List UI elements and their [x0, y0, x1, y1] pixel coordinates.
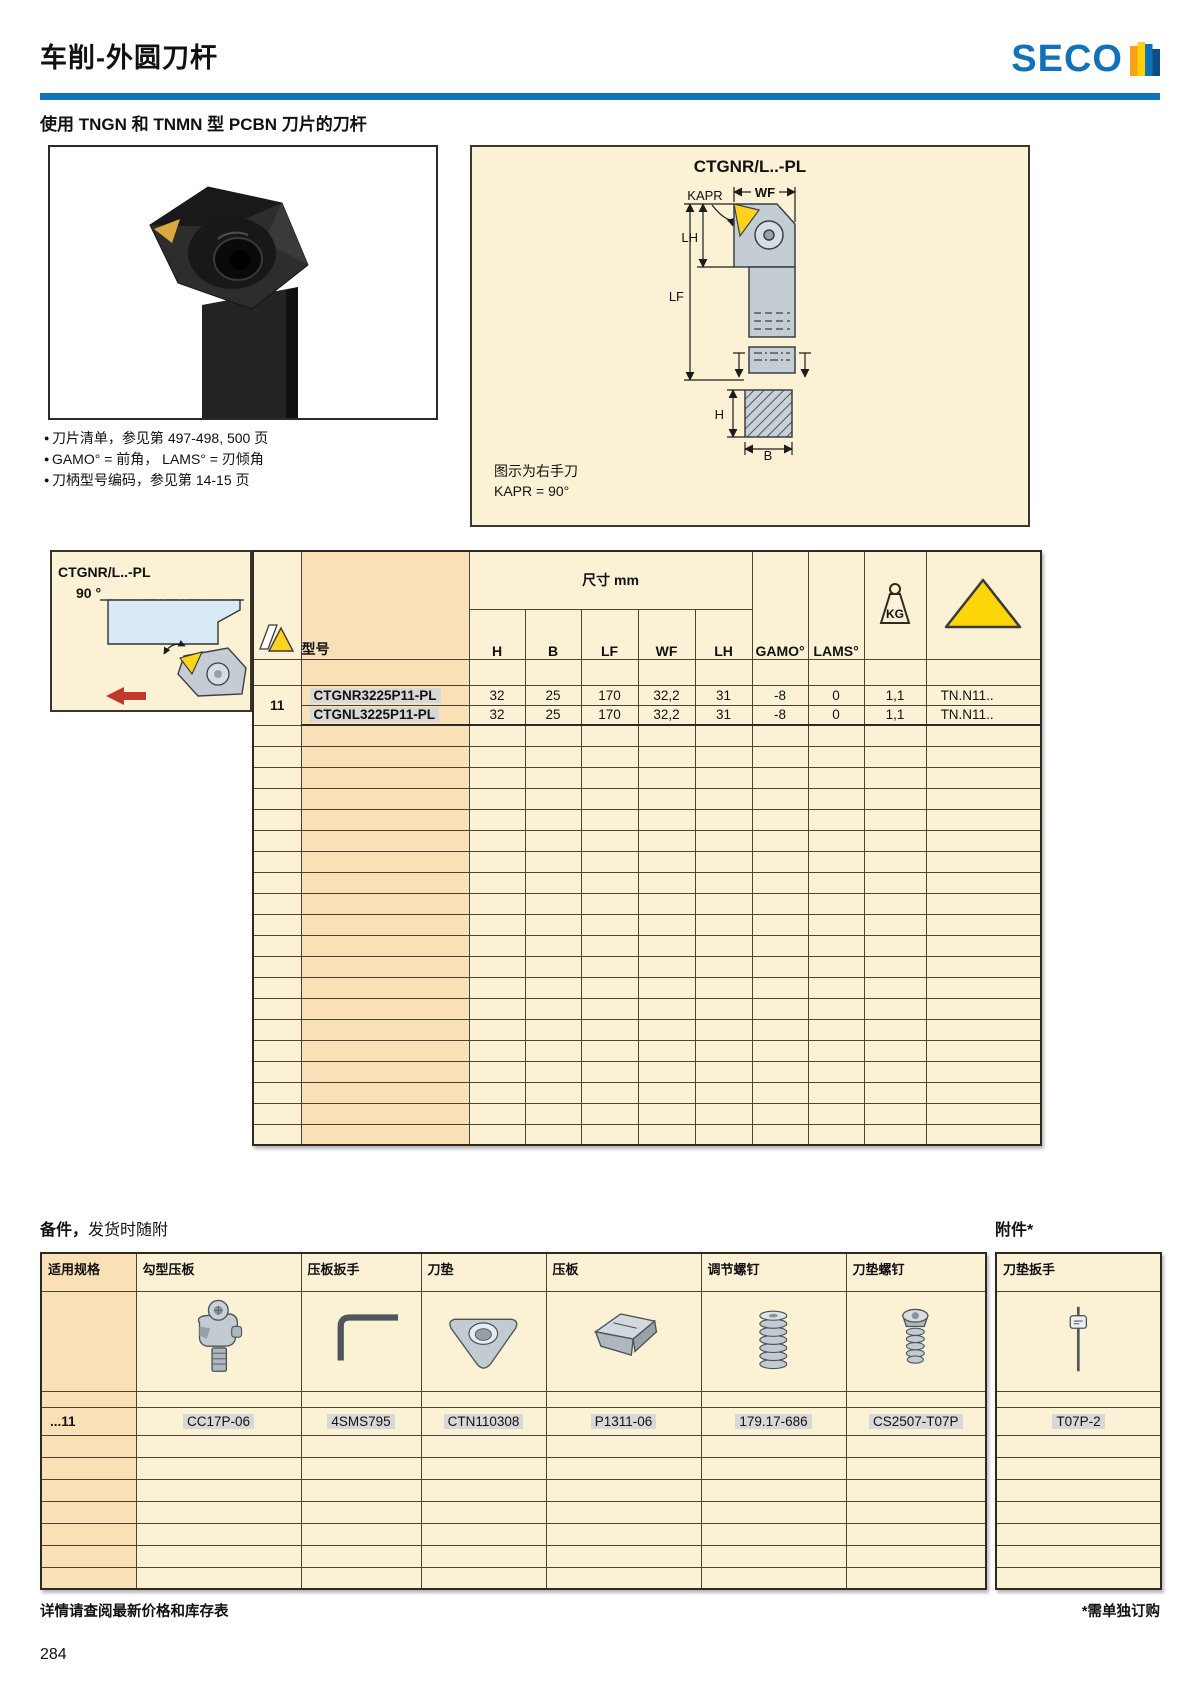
- seco-logo: SECO: [1011, 40, 1160, 78]
- empty-row: [996, 1479, 1161, 1501]
- section-subtitle: 使用 TNGN 和 TNMN 型 PCBN 刀片的刀杆: [40, 110, 367, 135]
- diagram-title: CTGNR/L..-PL: [472, 157, 1028, 177]
- spacer-row: [41, 1391, 986, 1407]
- empty-row: [41, 1501, 986, 1523]
- accessory-image-row: [41, 1291, 986, 1391]
- h-cell: 32: [469, 705, 525, 725]
- empty-row: [253, 851, 1041, 872]
- empty-row: [253, 956, 1041, 977]
- accessory-value-row: T07P-2: [996, 1407, 1161, 1435]
- hook-clamp-icon: [178, 1296, 259, 1382]
- note-item: GAMO° = 前角， LAMS° = 刃倾角: [44, 449, 268, 470]
- wf-label: WF: [755, 185, 775, 200]
- note-item: 刀片清单，参见第 497-498, 500 页: [44, 428, 268, 449]
- b-cell: 25: [525, 685, 581, 705]
- shim-part: CTN110308: [421, 1407, 546, 1435]
- kg-cell: 1,1: [864, 685, 926, 705]
- model-cell: CTGNL3225P11-PL: [301, 705, 469, 725]
- lams-cell: 0: [808, 685, 864, 705]
- empty-row: [253, 1124, 1041, 1145]
- empty-row: [253, 830, 1041, 851]
- wf-column-header: WF: [638, 609, 695, 659]
- gamo-cell: -8: [752, 685, 808, 705]
- empty-row: [253, 1082, 1041, 1103]
- clamp-icon: [583, 1296, 664, 1382]
- empty-row: [41, 1457, 986, 1479]
- table-row: CTGNL3225P11-PL 32 25 170 32,2 31 -8 0 1…: [253, 705, 1041, 725]
- table-row: 11 CTGNR3225P11-PL 32 25 170 32,2 31 -8 …: [253, 685, 1041, 705]
- triangle-insert-icon: [940, 575, 1026, 633]
- adjust-screw-header: 调节螺钉: [701, 1253, 846, 1291]
- kapr-label: KAPR: [687, 188, 722, 203]
- h-label: H: [715, 407, 724, 422]
- empty-row: [41, 1479, 986, 1501]
- spec-cell: ...11: [41, 1407, 136, 1435]
- spec-column-header: 适用规格: [41, 1253, 136, 1291]
- spare-parts-title: 备件，发货时随附: [40, 1216, 168, 1240]
- diagram-note-kapr: KAPR = 90°: [494, 483, 569, 499]
- model-column-header: 型号: [301, 551, 469, 659]
- lh-label: LH: [681, 230, 698, 245]
- dimension-diagram-box: CTGNR/L..-PL: [470, 145, 1030, 527]
- accessory-value-row: ...11 CC17P-06 4SMS795 CTN110308 P1311-0…: [41, 1407, 986, 1435]
- empty-row: [996, 1457, 1161, 1479]
- toolholder-photo: [50, 147, 436, 418]
- catalog-page: 车削-外圆刀杆 SECO 使用 TNGN 和 TNMN 型 PCBN 刀片的刀杆…: [0, 0, 1200, 1697]
- empty-row: [41, 1545, 986, 1567]
- feed-direction-arrow: [106, 687, 146, 705]
- page-number: 284: [40, 1646, 67, 1664]
- dimensions-group-header: 尺寸 mm: [469, 551, 752, 609]
- b-column-header: B: [525, 609, 581, 659]
- empty-row: [253, 788, 1041, 809]
- empty-row: [253, 977, 1041, 998]
- shim-wrench-part: T07P-2: [996, 1407, 1161, 1435]
- note-item: 刀柄型号编码，参见第 14-15 页: [44, 470, 268, 491]
- empty-row: [253, 914, 1041, 935]
- lh-cell: 31: [695, 685, 752, 705]
- empty-row: [41, 1523, 986, 1545]
- gamo-cell: -8: [752, 705, 808, 725]
- shim-screw-icon: [875, 1296, 956, 1382]
- clamp-part: P1311-06: [546, 1407, 701, 1435]
- adjust-screw-part: 179.17-686: [701, 1407, 846, 1435]
- empty-row: [253, 872, 1041, 893]
- b-cell: 25: [525, 705, 581, 725]
- lf-label: LF: [669, 289, 684, 304]
- empty-row: [253, 998, 1041, 1019]
- empty-row: [253, 1103, 1041, 1124]
- svg-text:B: B: [764, 448, 773, 463]
- gamo-column-header: GAMO°: [752, 551, 808, 659]
- insert-shape-icon: [257, 620, 297, 656]
- holder-spec-table: 型号 尺寸 mm GAMO° LAMS° KG: [252, 550, 1042, 1146]
- empty-row: [253, 746, 1041, 767]
- lf-cell: 170: [581, 705, 638, 725]
- brand-wordmark: SECO: [1011, 40, 1123, 78]
- insert-ref-column-header: [926, 551, 1041, 659]
- empty-row: [996, 1567, 1161, 1589]
- header-rule: [40, 93, 1160, 100]
- h-cell: 32: [469, 685, 525, 705]
- spacer-row: [996, 1391, 1161, 1407]
- footer-note-right: *需单独订购: [1082, 1600, 1160, 1621]
- holder-style-angle: 90 °: [76, 585, 101, 601]
- seco-flag-icon: [1130, 42, 1160, 76]
- insert-shape-column-header: [253, 551, 301, 659]
- svg-text:KG: KG: [886, 607, 904, 621]
- accessory-image-row: [996, 1291, 1161, 1391]
- insert-ref-cell: TN.N11..: [926, 705, 1041, 725]
- clamp-wrench-header: 压板扳手: [301, 1253, 421, 1291]
- lh-column-header: LH: [695, 609, 752, 659]
- shim-icon: [443, 1296, 524, 1382]
- empty-row: [41, 1567, 986, 1589]
- empty-row: [253, 1061, 1041, 1082]
- empty-row: [996, 1435, 1161, 1457]
- lh-cell: 31: [695, 705, 752, 725]
- shim-screw-header: 刀垫螺钉: [846, 1253, 986, 1291]
- page-title: 车削-外圆刀杆: [40, 36, 218, 75]
- product-photo-box: [48, 145, 438, 420]
- lf-cell: 170: [581, 685, 638, 705]
- lams-column-header: LAMS°: [808, 551, 864, 659]
- model-cell: CTGNR3225P11-PL: [301, 685, 469, 705]
- weight-column-header: KG: [864, 551, 926, 659]
- accessories-title: 附件*: [995, 1216, 1033, 1240]
- notes-list: 刀片清单，参见第 497-498, 500 页 GAMO° = 前角， LAMS…: [44, 428, 268, 491]
- holder-style-model: CTGNR/L..-PL: [58, 564, 151, 580]
- empty-row: [41, 1435, 986, 1457]
- shim-header: 刀垫: [421, 1253, 546, 1291]
- lf-column-header: LF: [581, 609, 638, 659]
- empty-row: [253, 809, 1041, 830]
- spare-parts-table: 适用规格 勾型压板 压板扳手 刀垫 压板 调节螺钉 刀垫螺钉: [40, 1252, 987, 1590]
- holder-style-box: CTGNR/L..-PL 90 °: [50, 550, 252, 712]
- shim-wrench-header: 刀垫扳手: [996, 1253, 1161, 1291]
- separate-accessories-table: 刀垫扳手 T07P-2: [995, 1252, 1162, 1590]
- diagram-note-hand: 图示为右手刀: [494, 461, 578, 481]
- workpiece: [108, 600, 240, 644]
- wf-cell: 32,2: [638, 705, 695, 725]
- clamp-wrench-icon: [321, 1296, 402, 1382]
- shim-screw-part: CS2507-T07P: [846, 1407, 986, 1435]
- empty-row: [253, 1040, 1041, 1061]
- lams-cell: 0: [808, 705, 864, 725]
- empty-row: [996, 1523, 1161, 1545]
- insert-ref-cell: TN.N11..: [926, 685, 1041, 705]
- empty-row: [253, 767, 1041, 788]
- empty-row: [996, 1501, 1161, 1523]
- adjust-screw-icon: [733, 1296, 814, 1382]
- empty-row: [253, 893, 1041, 914]
- empty-row: [253, 1019, 1041, 1040]
- kg-cell: 1,1: [864, 705, 926, 725]
- hook-clamp-part: CC17P-06: [136, 1407, 301, 1435]
- hook-clamp-header: 勾型压板: [136, 1253, 301, 1291]
- kg-weight-icon: KG: [871, 581, 919, 627]
- h-column-header: H: [469, 609, 525, 659]
- clamp-header: 压板: [546, 1253, 701, 1291]
- empty-row: [253, 935, 1041, 956]
- size-ref: 11: [253, 685, 301, 725]
- empty-row: [996, 1545, 1161, 1567]
- shim-wrench-icon: [1038, 1296, 1119, 1382]
- wf-cell: 32,2: [638, 685, 695, 705]
- spacer-row: [253, 659, 1041, 685]
- clamp-wrench-part: 4SMS795: [301, 1407, 421, 1435]
- footer-note-left: 详情请查阅最新价格和库存表: [40, 1600, 229, 1621]
- empty-row: [253, 725, 1041, 746]
